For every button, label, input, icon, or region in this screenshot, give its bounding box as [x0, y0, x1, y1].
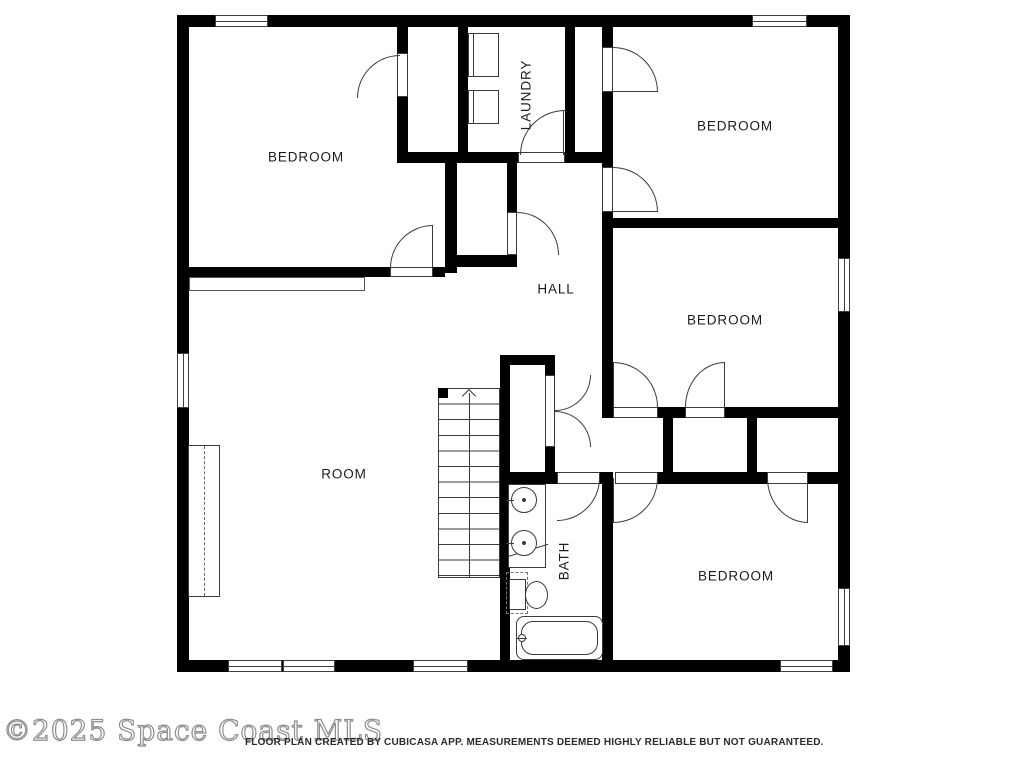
door-leaf-line	[432, 225, 433, 268]
wall-hall-right-low	[602, 212, 613, 418]
window-right-middle	[838, 258, 850, 312]
wall-closet-stub-2	[747, 418, 757, 472]
wardrobe	[188, 445, 220, 597]
wall-bedroomMR-bottom-b	[725, 407, 850, 418]
floor-plan: BEDROOM LAUNDRY BEDROOM HALL BEDROOM ROO…	[0, 0, 1024, 768]
bathtub-faucet-line	[517, 638, 527, 639]
door-leaf-line	[807, 478, 808, 523]
toilet-icon	[525, 581, 548, 609]
room-label-laundry: LAUNDRY	[519, 60, 534, 131]
door-leaf-line	[613, 211, 658, 212]
window-right-bottom	[838, 588, 850, 646]
bathtub-inner	[521, 621, 598, 655]
door-arc	[390, 225, 433, 268]
door-arc	[685, 362, 725, 407]
wardrobe-divider-line	[204, 446, 205, 596]
window-bottom-1	[228, 660, 282, 672]
wall-closet-laundry	[458, 27, 468, 152]
wall-outer-right	[838, 15, 850, 672]
wall-bedroomTL-bottom-w	[189, 267, 390, 277]
room-label-bath: BATH	[557, 542, 572, 581]
door-leaf	[545, 375, 555, 447]
wall-closet-stub-1	[663, 418, 673, 472]
door-leaf	[613, 407, 658, 418]
door-arc	[613, 47, 658, 92]
door-leaf	[507, 212, 517, 255]
door-leaf-line	[613, 362, 614, 407]
door-arc	[517, 212, 559, 255]
door-leaf	[390, 267, 433, 277]
wall-bedroomBR-top-a	[658, 472, 767, 484]
window-bottom-3	[413, 660, 468, 672]
room-label-bedroom-middle-right: BEDROOM	[687, 313, 763, 328]
room-label-hall: HALL	[537, 282, 574, 297]
window-bottom-2	[283, 660, 335, 672]
staircase-direction-line	[469, 393, 470, 577]
wall-hallcloset-left	[445, 152, 457, 273]
door-arc	[767, 478, 808, 523]
door-leaf-line	[613, 91, 658, 92]
wall-hallcloset-bottom	[457, 255, 517, 267]
wall-bedroomBR-top-b	[808, 472, 850, 484]
room-label-bedroom-bottom-right: BEDROOM	[698, 569, 774, 584]
wall-bath-top-w	[500, 472, 557, 484]
washer-door-line	[473, 34, 474, 76]
sink-drain-dot	[522, 498, 526, 502]
wall-outer-top	[177, 15, 850, 27]
staircase	[438, 388, 500, 578]
dryer-door-line	[473, 91, 474, 123]
window-top-left	[215, 15, 268, 27]
wall-laundry-bottom-w	[397, 152, 518, 163]
door-arc	[357, 55, 400, 98]
wall-linen-right-top	[545, 365, 555, 375]
door-leaf	[602, 47, 613, 92]
door-leaf-line	[724, 362, 725, 407]
wall-bedroomTL-bottom-e	[433, 267, 445, 277]
washer-icon	[468, 33, 499, 77]
sink-faucet-line	[506, 543, 514, 544]
door-leaf-line	[563, 110, 564, 155]
window-left	[177, 353, 189, 408]
door-leaf-line	[613, 478, 614, 523]
wall-laundry-bottom-e	[565, 152, 612, 163]
wall-ledge	[189, 277, 365, 291]
wall-hallcloset-right	[507, 163, 517, 212]
door-arc	[555, 375, 591, 411]
wall-bath-bedroomBR	[602, 472, 613, 662]
door-arc	[613, 478, 658, 523]
disclaimer-text: FLOOR PLAN CREATED BY CUBICASA APP. MEAS…	[245, 737, 824, 748]
dryer-icon	[468, 90, 499, 124]
toilet-tank	[509, 579, 526, 610]
wall-bedroomMR-bottom-a	[658, 407, 685, 418]
wall-bedroomTR-bottom	[602, 218, 850, 228]
wall-linen-top	[500, 355, 555, 365]
room-label-room: ROOM	[321, 467, 367, 482]
door-arc	[613, 167, 658, 212]
wall-hall-right-top	[602, 27, 613, 47]
wall-laundry-right	[565, 27, 575, 153]
sink-drain-dot	[522, 541, 526, 545]
door-arc	[555, 411, 591, 447]
staircase-newel	[438, 388, 448, 398]
window-bottom-4	[780, 660, 833, 672]
wall-linen-right-bot	[545, 447, 555, 472]
door-arc	[613, 362, 658, 407]
room-label-bedroom-top-left: BEDROOM	[268, 150, 344, 165]
door-arc	[557, 478, 600, 521]
door-leaf	[685, 407, 725, 418]
window-top-right	[752, 15, 807, 27]
sink-faucet-line	[506, 500, 514, 501]
room-label-bedroom-top-right: BEDROOM	[697, 119, 773, 134]
door-leaf	[602, 167, 613, 212]
